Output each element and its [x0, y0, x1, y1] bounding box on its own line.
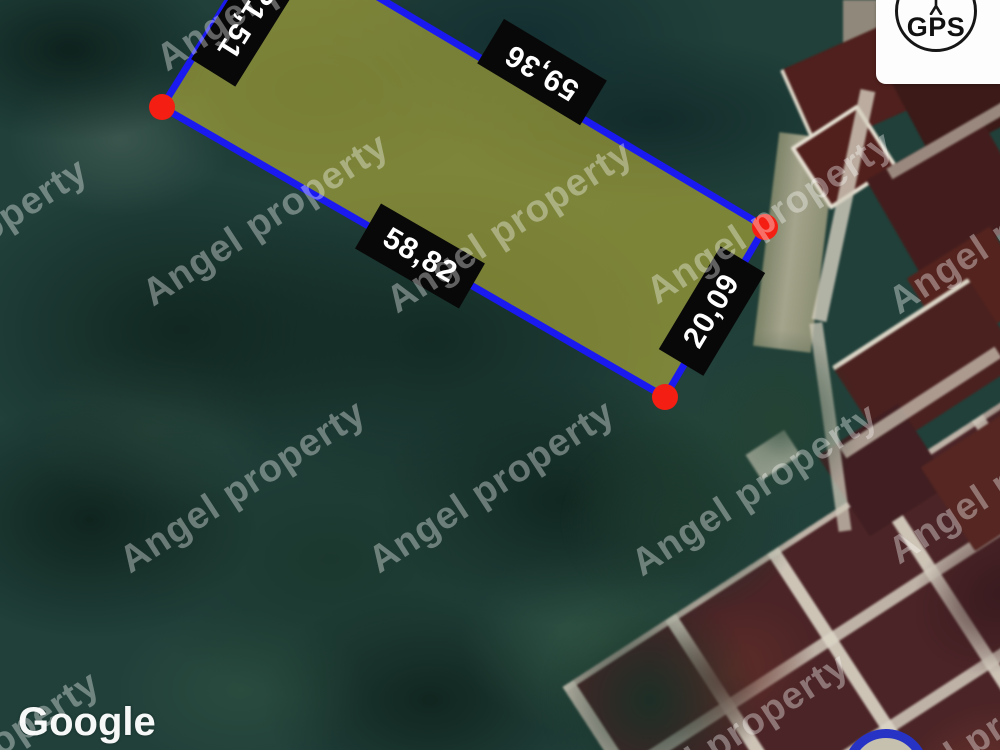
satellite-map-view[interactable]: 59,36 21,51 58,82 20,09 GPS Google Angel…: [0, 0, 1000, 750]
corner-marker[interactable]: [652, 384, 678, 410]
google-attribution: Google: [18, 700, 156, 745]
gps-button-label: GPS: [876, 12, 996, 43]
corner-marker[interactable]: [752, 214, 778, 240]
plot-overlay: [0, 0, 1000, 750]
corner-marker[interactable]: [149, 94, 175, 120]
gps-button[interactable]: GPS: [876, 0, 1000, 84]
